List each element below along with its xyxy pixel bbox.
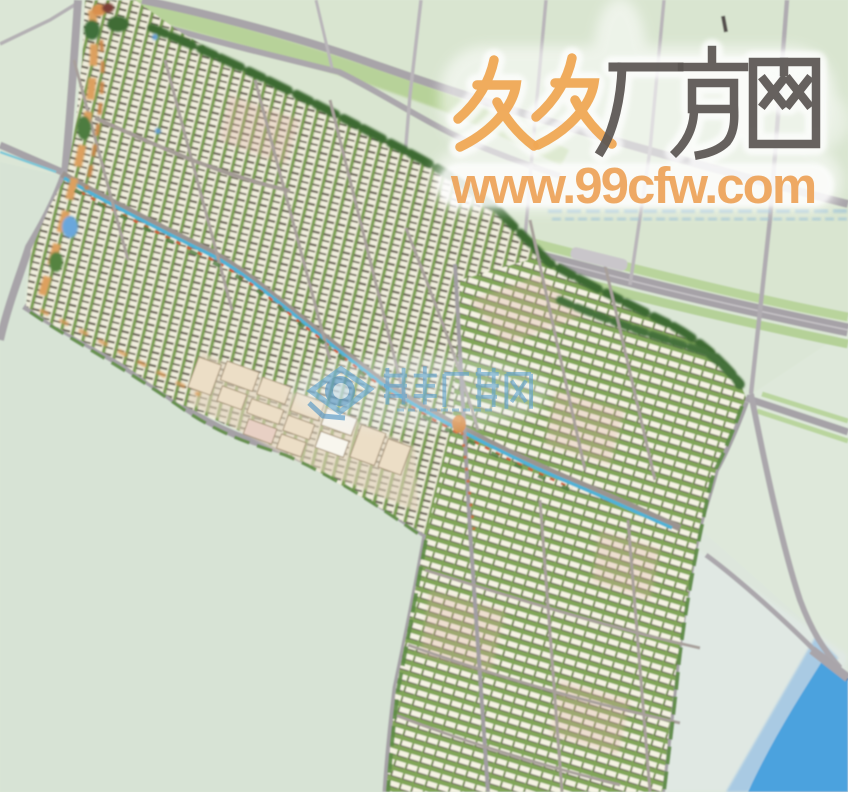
- svg-text:www.99cfw.com: www.99cfw.com: [450, 157, 815, 214]
